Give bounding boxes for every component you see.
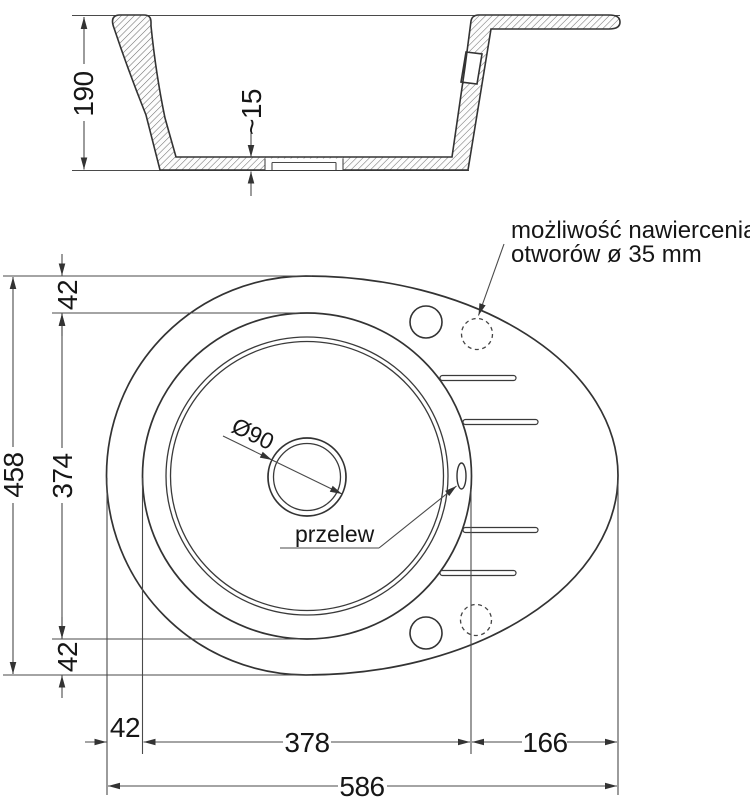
dim-total-width: 586	[108, 771, 617, 800]
drill-note-line1: możliwość nawiercenia	[511, 217, 750, 244]
plan-view: możliwość nawiercenia otworów ø 35 mm Ø9…	[0, 217, 750, 800]
sink-outline	[107, 276, 619, 675]
dim-drainer-width-label: 166	[522, 727, 567, 758]
dim-total-height-label: 458	[0, 452, 29, 497]
dim-depth-label: 190	[68, 71, 99, 116]
dim-bowl-height: 374	[47, 314, 78, 638]
dim-bowl-height-label: 374	[47, 453, 78, 498]
drainer-groove-3	[463, 528, 538, 533]
dim-left-offset: 42	[85, 712, 140, 743]
dim-floor-thickness-label: ~15	[236, 89, 267, 135]
drill-note-leader	[479, 244, 505, 316]
drainer-groove-2	[463, 420, 538, 425]
drain-recess-gap	[265, 159, 343, 170]
drainer-groove-4	[440, 571, 516, 576]
sink-cross-section-body	[113, 15, 621, 170]
dim-bowl-width: 378	[144, 727, 471, 758]
sink-technical-drawing: 190 ~15	[0, 0, 750, 800]
dim-left-offset-label: 42	[110, 712, 140, 743]
tap-hole-bottom	[410, 617, 442, 649]
dim-total-width-label: 586	[339, 771, 384, 800]
dim-top-edge: 42	[52, 254, 83, 336]
overflow-slot	[457, 463, 466, 489]
dim-total-height: 458	[0, 277, 29, 674]
dim-bottom-edge: 42	[52, 617, 83, 698]
section-view: 190 ~15	[68, 15, 620, 196]
technical-drawing-page: 190 ~15	[0, 0, 750, 800]
overflow-label: przelew	[295, 521, 375, 547]
dim-floor-thickness: ~15	[236, 89, 267, 196]
dim-top-edge-label: 42	[52, 280, 83, 310]
drain-recess	[265, 159, 343, 170]
dim-bottom-edge-label: 42	[52, 642, 83, 672]
dim-depth: 190	[68, 17, 99, 170]
tap-hole-top	[410, 306, 442, 338]
dim-drainer-width: 166	[472, 727, 617, 758]
drill-note: możliwość nawiercenia otworów ø 35 mm	[479, 217, 750, 316]
dim-bowl-width-label: 378	[284, 727, 329, 758]
drill-note-line2: otworów ø 35 mm	[511, 241, 702, 268]
drainer-groove-1	[440, 376, 516, 381]
